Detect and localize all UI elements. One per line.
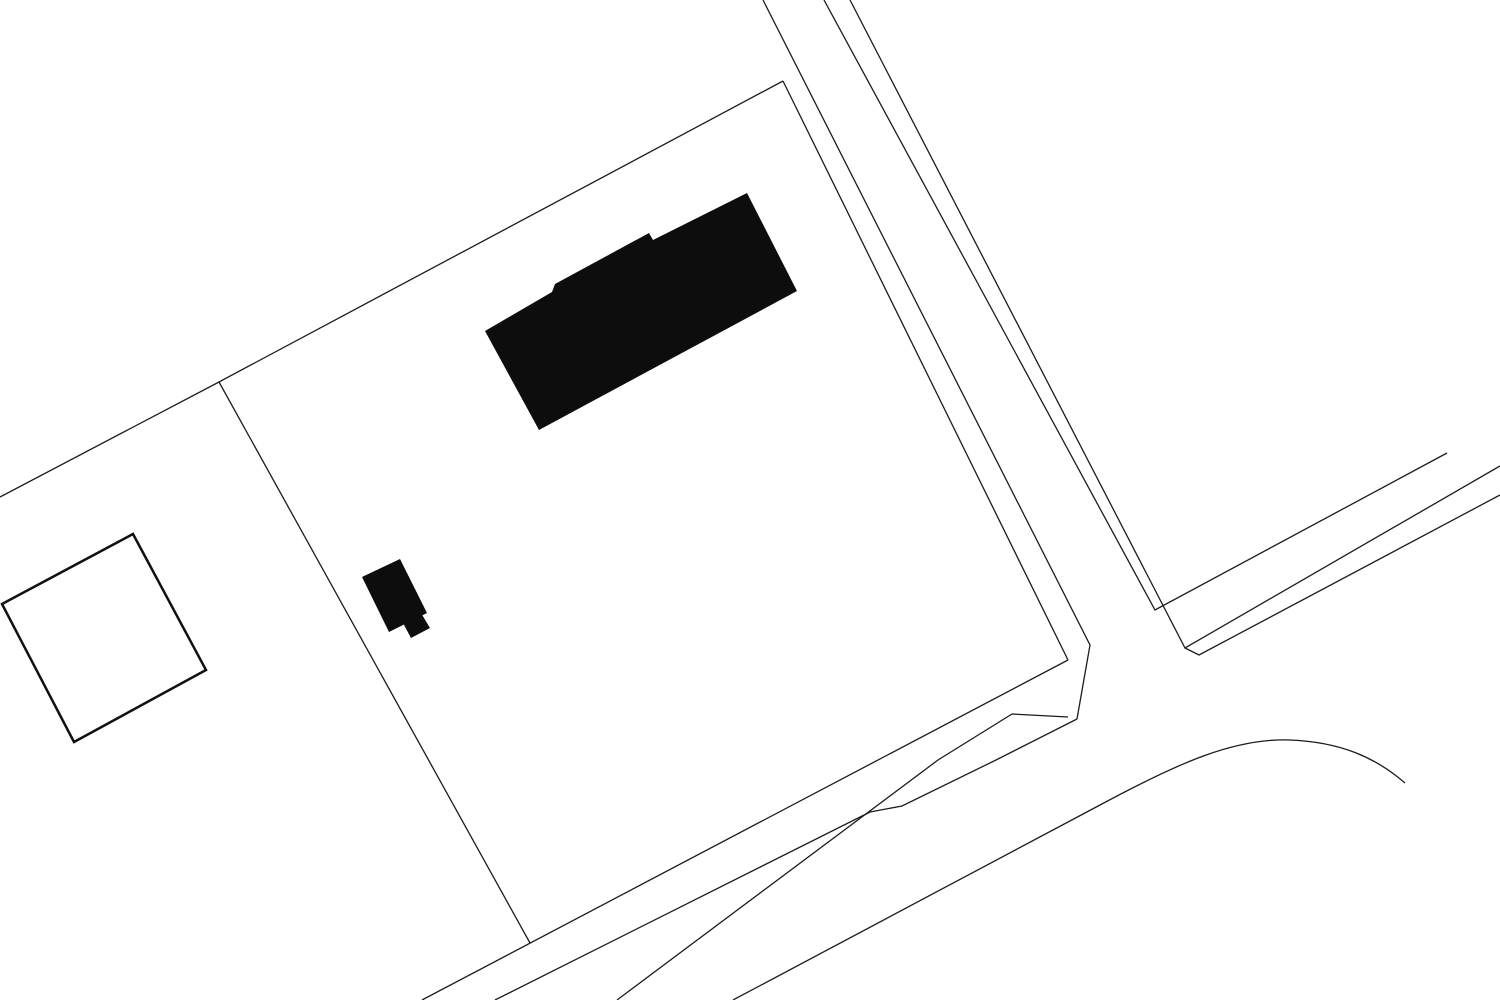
large-building-footprint [485, 193, 797, 430]
site-plan-svg [0, 0, 1500, 1000]
road-south-north-edge [495, 719, 1077, 1000]
parcel-south-edge [422, 660, 1068, 1000]
square-parcel-outline [2, 534, 206, 742]
road-north-west-edge [763, 0, 1090, 719]
road-curve-southeast [733, 740, 1405, 1000]
site-plan-stage [0, 0, 1500, 1000]
road-south-south-edge [617, 714, 1068, 1000]
road-east-chamfer-edge [1185, 495, 1500, 655]
road-east-outer-edge [850, 0, 1500, 648]
parcel-west-edge [219, 382, 530, 943]
